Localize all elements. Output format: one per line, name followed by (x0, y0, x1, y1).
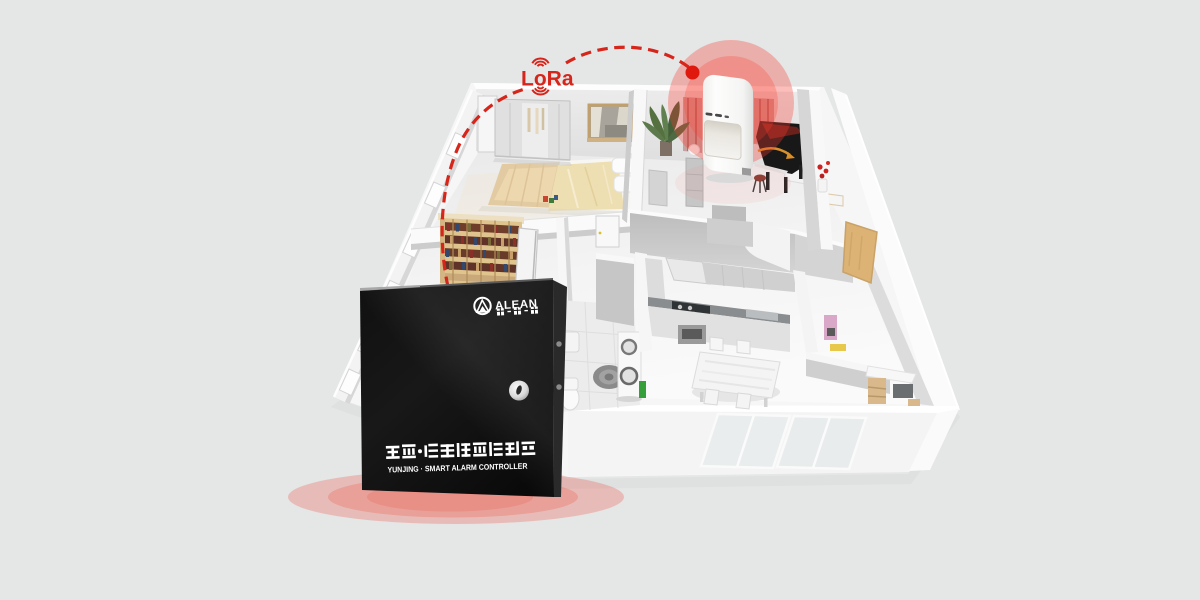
svg-text:LoRa: LoRa (521, 68, 574, 91)
